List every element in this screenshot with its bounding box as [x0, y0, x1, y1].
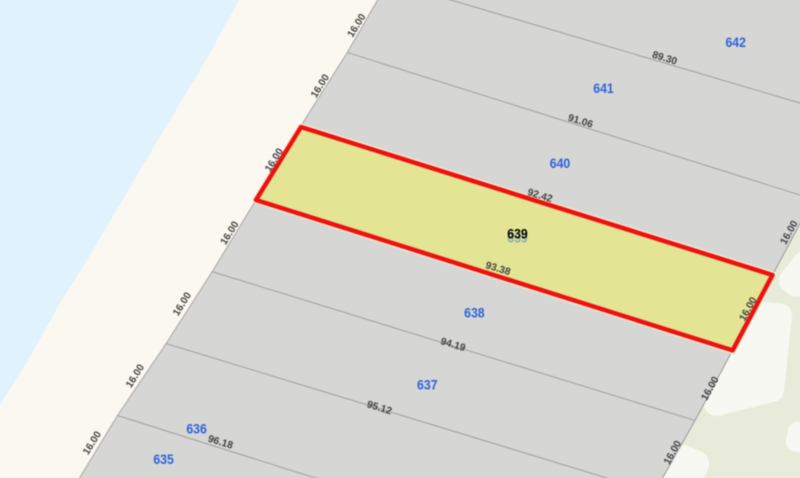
svg-text:639: 639: [507, 226, 528, 242]
svg-text:635: 635: [153, 451, 174, 467]
svg-text:640: 640: [550, 155, 571, 171]
svg-text:641: 641: [593, 80, 614, 96]
svg-text:638: 638: [464, 305, 485, 321]
svg-text:642: 642: [725, 34, 746, 50]
svg-text:637: 637: [417, 376, 438, 392]
svg-text:636: 636: [186, 421, 207, 437]
